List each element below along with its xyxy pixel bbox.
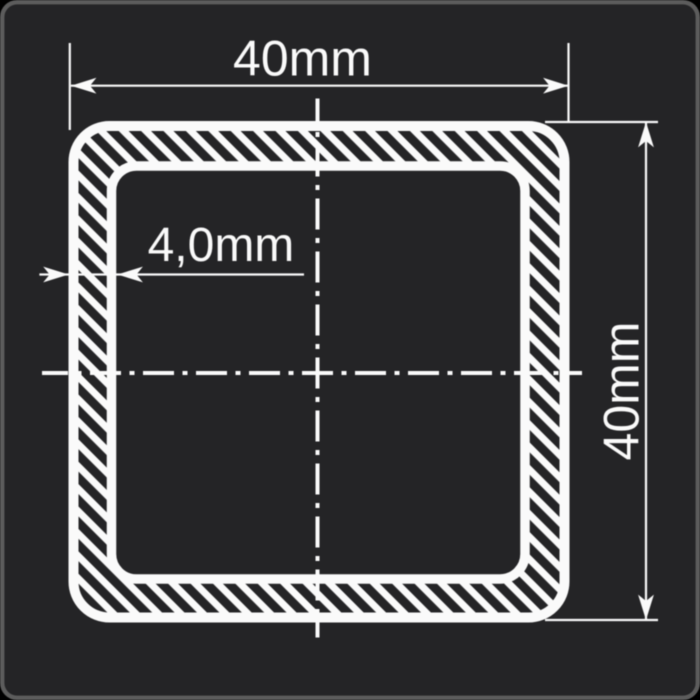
svg-text:4,0mm: 4,0mm [148, 219, 295, 272]
svg-text:40mm: 40mm [594, 322, 650, 461]
svg-text:40mm: 40mm [233, 31, 372, 87]
